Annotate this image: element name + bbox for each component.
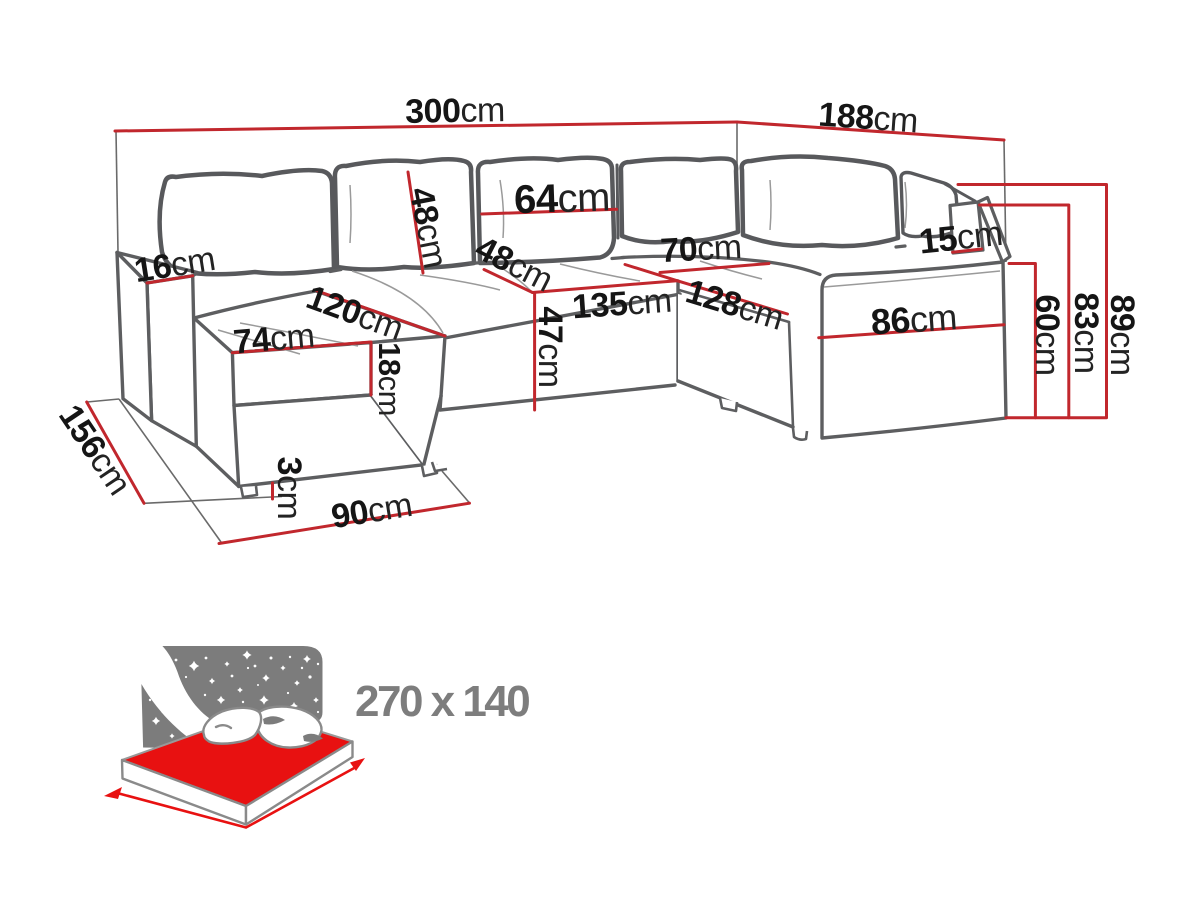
svg-text:86cm: 86cm (869, 296, 958, 343)
svg-text:18cm: 18cm (372, 342, 407, 416)
svg-text:300cm: 300cm (405, 91, 505, 131)
svg-text:188cm: 188cm (817, 96, 919, 141)
svg-text:83cm: 83cm (1067, 292, 1105, 373)
svg-text:60cm: 60cm (1028, 294, 1066, 375)
svg-text:135cm: 135cm (571, 282, 673, 327)
svg-text:64cm: 64cm (513, 175, 610, 222)
svg-text:89cm: 89cm (1103, 294, 1141, 375)
svg-text:270 x 140: 270 x 140 (355, 677, 529, 726)
svg-text:70cm: 70cm (659, 228, 742, 270)
svg-text:3cm: 3cm (270, 457, 308, 520)
svg-text:74cm: 74cm (232, 317, 316, 362)
svg-text:47cm: 47cm (531, 306, 569, 387)
